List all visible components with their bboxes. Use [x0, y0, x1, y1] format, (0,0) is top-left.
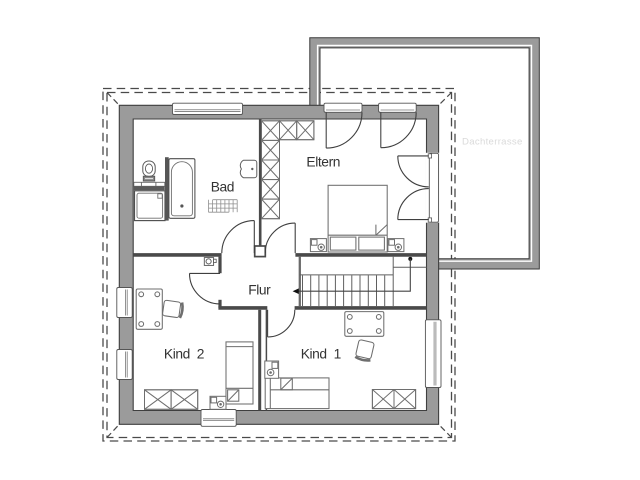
svg-text:Flur: Flur [248, 282, 271, 297]
svg-text:Eltern: Eltern [306, 154, 340, 169]
svg-text:Kind 1: Kind 1 [301, 347, 341, 362]
svg-text:Kind 2: Kind 2 [164, 347, 204, 362]
svg-text:Bad: Bad [211, 180, 234, 195]
svg-text:Dachterrasse: Dachterrasse [462, 136, 523, 147]
